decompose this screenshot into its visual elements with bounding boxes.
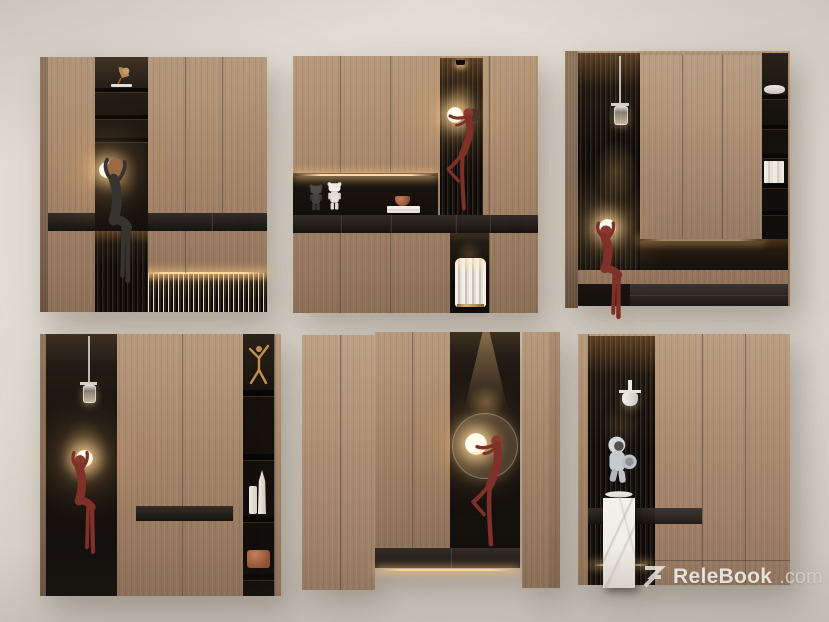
cabinet-top-right: [565, 51, 790, 308]
shelf: [762, 211, 788, 215]
door-seam: [222, 57, 224, 213]
drawer-band: [293, 215, 538, 233]
watermark-suffix: .com: [779, 566, 822, 589]
drawer-seam: [630, 294, 788, 296]
door-seam: [390, 233, 392, 313]
drawer-seam: [455, 215, 457, 233]
door-seam: [412, 332, 414, 548]
plate-stack: [764, 85, 785, 94]
large-door: [640, 55, 762, 239]
book-stack: [764, 161, 784, 183]
base-light-strip: [141, 272, 267, 274]
cabinet-bottom-middle: [302, 332, 560, 590]
shelf: [762, 184, 788, 188]
stool-gold-base: [457, 304, 484, 307]
pendant-cord: [619, 56, 621, 104]
cabinet-top-left: [40, 57, 267, 312]
drawer-seam: [211, 213, 213, 231]
shelf: [243, 574, 274, 580]
bearbrick-toy-dark: [308, 182, 324, 213]
relebook-logo: [640, 564, 666, 590]
pendant-cord: [88, 336, 90, 382]
drawer-band: [48, 213, 267, 231]
ribbed-base: [141, 273, 267, 312]
shelf: [243, 454, 274, 460]
door-seam: [182, 521, 184, 596]
shelf: [762, 154, 788, 158]
shelf: [762, 125, 788, 129]
door-seam: [702, 334, 704, 585]
under-drawer-light: [377, 569, 518, 571]
copper-bowl: [395, 196, 410, 206]
showroom-wall: ReleBook.com: [0, 0, 829, 622]
copper-box: [247, 550, 270, 568]
underdoor-light: [640, 239, 762, 241]
door-seam: [489, 56, 491, 313]
shelf: [762, 95, 788, 99]
stool-niche: [450, 233, 489, 313]
astronaut-figurine: [600, 434, 642, 498]
door-sheen: [640, 55, 762, 239]
pendant-lamp: [83, 385, 96, 403]
shelf: [243, 390, 274, 396]
door-seam: [340, 56, 342, 173]
bearbrick-toy-white: [326, 179, 343, 213]
door-seam: [182, 334, 184, 506]
slab-sheen: [302, 335, 375, 590]
watermark: ReleBook.com: [640, 563, 823, 591]
book-stack: [387, 206, 420, 213]
door-seam: [682, 55, 684, 239]
watermark-brand: ReleBook: [673, 565, 772, 589]
dancer-figure-red: [443, 104, 481, 214]
cabinet-bottom-left: [40, 334, 281, 596]
underdoor-recess: [640, 239, 788, 270]
door-seam: [340, 335, 342, 590]
open-shelf-niche: [293, 173, 438, 215]
door-seam: [722, 55, 724, 239]
marble-pedestal: [603, 498, 635, 588]
downlight: [456, 60, 465, 65]
drawer-seam: [340, 215, 342, 233]
gramophone-ornament: [109, 66, 135, 88]
seated-figure-red: [62, 442, 106, 560]
middle-doors: [375, 332, 450, 548]
plank-shade: [550, 332, 560, 588]
shelf-column: [762, 53, 788, 239]
cabinet-top-middle: [293, 56, 538, 313]
niche-shelf: [95, 115, 148, 119]
shelf-light-strip: [295, 174, 436, 176]
vase: [258, 470, 266, 514]
fluted-stool: [455, 258, 486, 307]
candle: [249, 486, 257, 514]
pendant-lamp: [614, 106, 628, 125]
drawer-band: [375, 548, 520, 568]
seated-figure-dark: [94, 155, 142, 290]
niche-shelf: [95, 88, 148, 92]
shelf: [243, 516, 274, 522]
left-slab: [302, 335, 375, 590]
door-seam: [745, 334, 747, 585]
niche-light-pool: [588, 131, 644, 211]
door-seam: [185, 57, 187, 213]
drawer-seam: [390, 215, 392, 233]
door-area-sheen: [655, 334, 790, 585]
seated-figure-red: [585, 211, 631, 323]
door-seam-horizontal: [655, 560, 790, 562]
shelf-column: [243, 334, 274, 596]
door-seam: [274, 334, 276, 596]
door-seam: [390, 56, 392, 173]
right-plank: [522, 332, 560, 588]
door-seam: [185, 231, 187, 273]
cabinet-side-panel: [40, 57, 48, 312]
cabinet-bottom-right: [578, 334, 790, 588]
drawer-seam: [450, 548, 452, 568]
cabinet-side-panel: [565, 51, 578, 308]
drawer-band: [136, 506, 233, 521]
door-seam: [340, 233, 342, 313]
dancer-figure-red: [466, 430, 508, 548]
gymnast-ornament: [246, 342, 272, 388]
